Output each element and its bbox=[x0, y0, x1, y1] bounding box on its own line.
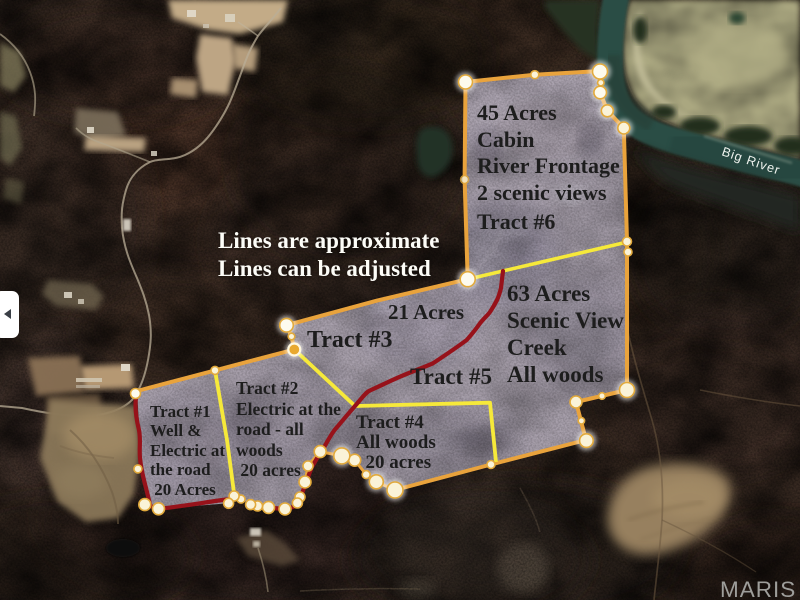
svg-text:MARIS: MARIS bbox=[720, 577, 796, 600]
